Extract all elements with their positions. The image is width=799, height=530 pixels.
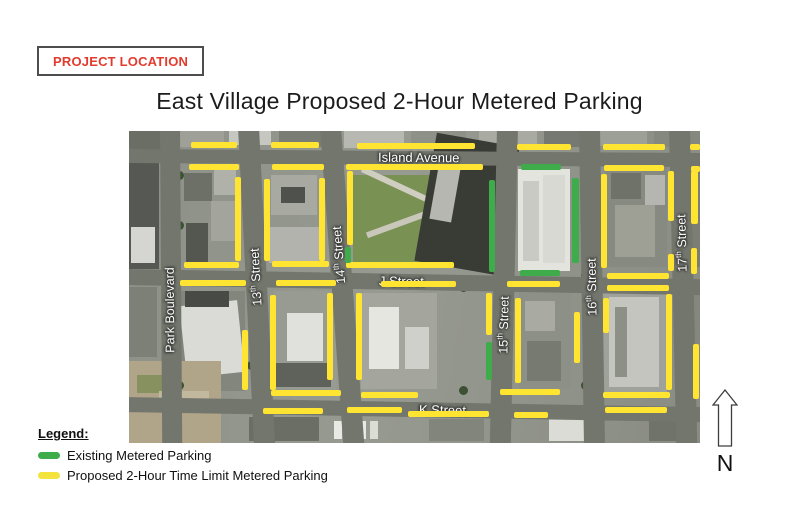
building-texture <box>369 307 399 369</box>
parking-segment-existing <box>345 247 351 263</box>
parking-segment-proposed <box>486 293 492 335</box>
legend-label-proposed: Proposed 2-Hour Time Limit Metered Parki… <box>67 468 328 483</box>
building-texture <box>275 363 331 387</box>
parking-segment-proposed <box>500 389 560 395</box>
parking-segment-proposed <box>603 392 670 398</box>
building-texture <box>405 327 429 369</box>
parking-segment-proposed <box>276 280 336 286</box>
building-texture <box>525 301 555 331</box>
parking-segment-proposed <box>517 144 571 150</box>
parking-segment-proposed <box>693 344 699 399</box>
parking-segment-proposed <box>347 171 353 245</box>
building-texture <box>429 419 484 441</box>
parking-segment-proposed <box>263 408 323 414</box>
satellite-map: Island AvenueJ StreetK StreetPark Boulev… <box>129 131 700 443</box>
building-texture <box>131 227 155 263</box>
legend: Legend: Existing Metered ParkingProposed… <box>38 426 328 485</box>
parking-segment-proposed <box>180 280 246 286</box>
building-texture <box>214 169 236 195</box>
building-texture <box>269 227 319 263</box>
street-label-island-avenue: Island Avenue <box>378 150 460 166</box>
legend-swatch-proposed <box>38 472 60 479</box>
parking-segment-proposed <box>666 294 672 390</box>
building-texture <box>184 173 212 201</box>
building-texture <box>615 205 655 257</box>
north-arrow-icon <box>712 389 738 447</box>
document-page: PROJECT LOCATION East Village Proposed 2… <box>0 0 799 530</box>
parking-segment-proposed <box>603 298 609 333</box>
parking-segment-proposed <box>601 174 607 268</box>
legend-item-existing: Existing Metered Parking <box>38 445 328 465</box>
building-texture <box>211 201 237 241</box>
building-texture <box>186 223 208 263</box>
parking-segment-proposed <box>270 295 276 390</box>
project-location-label: PROJECT LOCATION <box>53 54 188 69</box>
parking-segment-proposed <box>604 165 664 171</box>
building-texture <box>129 287 157 357</box>
parking-segment-proposed <box>507 281 560 287</box>
parking-segment-proposed <box>691 248 697 274</box>
street-label-park-boulevard: Park Boulevard <box>163 267 178 353</box>
north-label: N <box>705 450 745 477</box>
parking-segment-proposed <box>690 144 700 150</box>
street-label-15th-street: 15th Street <box>496 296 511 354</box>
building-texture <box>281 187 305 203</box>
street-label-13th-street: 13th Street <box>248 248 265 306</box>
parking-segment-proposed <box>408 411 489 417</box>
street-label-16th-street: 16th Street <box>585 258 600 316</box>
parking-segment-proposed <box>356 293 362 380</box>
building-texture <box>287 313 323 361</box>
parking-segment-proposed <box>191 142 237 148</box>
parking-segment-proposed <box>515 298 521 383</box>
parking-segment-proposed <box>514 412 548 418</box>
project-location-box: PROJECT LOCATION <box>37 46 204 76</box>
building-texture <box>523 181 539 261</box>
building-texture <box>129 131 163 151</box>
map-title: East Village Proposed 2-Hour Metered Par… <box>0 88 799 115</box>
parking-segment-existing <box>486 342 492 380</box>
parking-segment-proposed <box>691 171 698 224</box>
parking-segment-proposed <box>235 177 241 261</box>
parking-segment-proposed <box>347 407 402 413</box>
parking-segment-proposed <box>271 142 319 148</box>
parking-segment-existing <box>572 178 579 263</box>
parking-segment-existing <box>521 164 561 170</box>
parking-segment-existing <box>489 180 495 272</box>
street-label-17th-street: 17th Street <box>674 214 689 272</box>
parking-segment-proposed <box>272 261 329 267</box>
parking-segment-proposed <box>271 390 341 396</box>
legend-label-existing: Existing Metered Parking <box>67 448 212 463</box>
parking-segment-proposed <box>605 407 667 413</box>
north-indicator: N <box>705 389 745 477</box>
parking-segment-proposed <box>361 392 418 398</box>
parking-segment-proposed <box>264 179 270 261</box>
legend-items: Existing Metered ParkingProposed 2-Hour … <box>38 445 328 485</box>
parking-segment-proposed <box>668 254 674 271</box>
parking-segment-proposed <box>381 281 456 287</box>
parking-segment-proposed <box>319 178 325 261</box>
parking-segment-proposed <box>189 164 239 170</box>
parking-segment-proposed <box>184 262 239 268</box>
building-texture <box>615 307 627 377</box>
building-texture <box>645 175 665 205</box>
parking-segment-proposed <box>346 164 483 170</box>
parking-segment-proposed <box>607 273 669 279</box>
parking-segment-proposed <box>272 164 324 170</box>
parking-segment-proposed <box>242 330 248 390</box>
parking-segment-proposed <box>574 312 580 363</box>
parking-segment-proposed <box>346 262 454 268</box>
building-texture <box>543 175 565 263</box>
parking-segment-proposed <box>668 171 674 221</box>
parking-segment-existing <box>520 270 560 276</box>
parking-segment-proposed <box>607 285 669 291</box>
building-texture <box>611 173 641 199</box>
parking-segment-proposed <box>357 143 475 149</box>
legend-swatch-existing <box>38 452 60 459</box>
legend-heading: Legend: <box>38 426 328 441</box>
building-texture <box>185 291 229 307</box>
building-texture <box>527 341 561 381</box>
legend-item-proposed: Proposed 2-Hour Time Limit Metered Parki… <box>38 465 328 485</box>
parking-segment-proposed <box>603 144 665 150</box>
parking-segment-proposed <box>327 293 333 380</box>
